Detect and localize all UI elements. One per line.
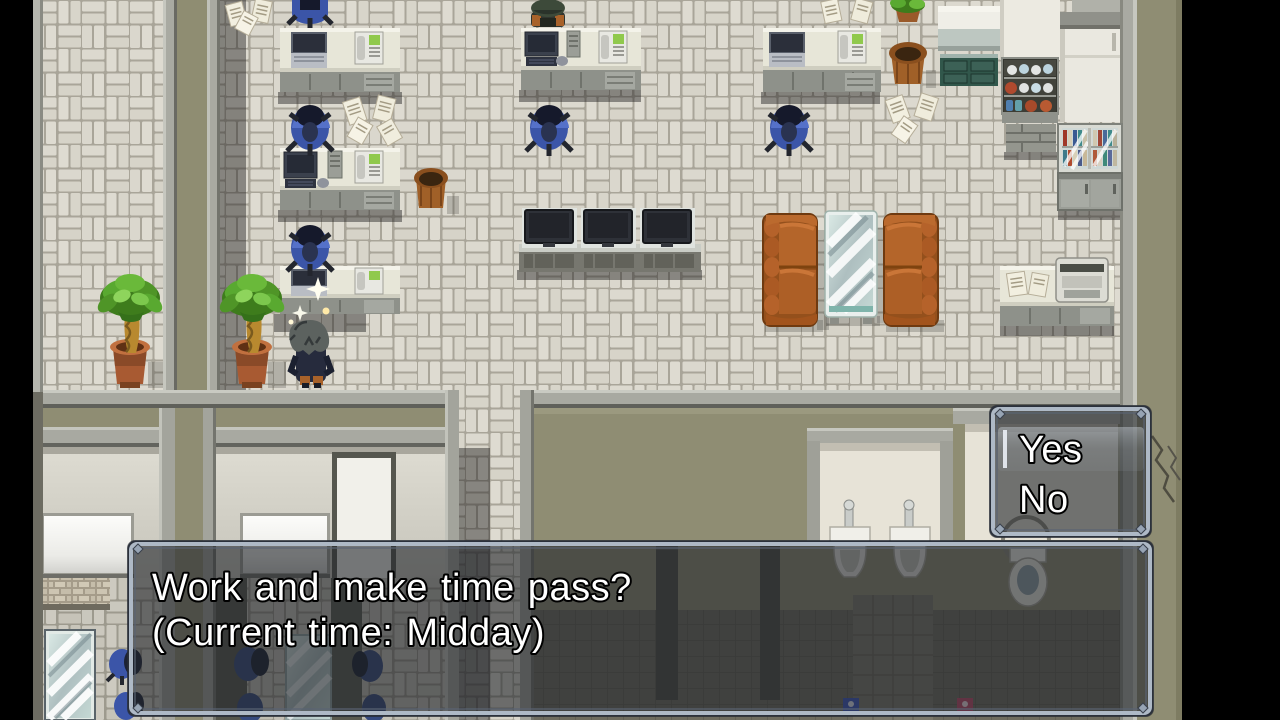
svg-text:(Current time: Midday): (Current time: Midday)	[152, 612, 545, 654]
svg-text:Work and make time pass?: Work and make time pass?	[152, 567, 632, 609]
svg-text:No: No	[1019, 479, 1069, 521]
svg-text:Yes: Yes	[1019, 429, 1083, 471]
